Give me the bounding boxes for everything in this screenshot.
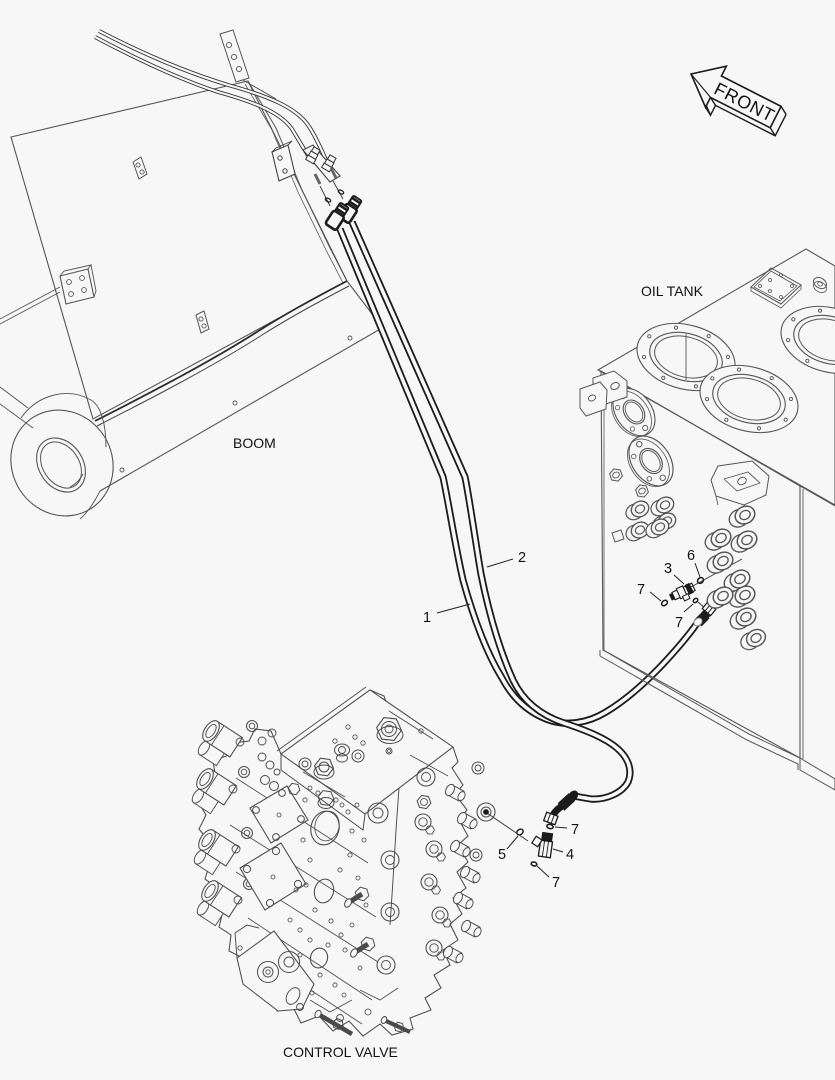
svg-text:6: 6 [687,548,695,564]
svg-text:CONTROL VALVE: CONTROL VALVE [283,1044,398,1060]
svg-text:1: 1 [423,610,431,626]
svg-text:3: 3 [664,561,672,577]
svg-text:7: 7 [675,615,683,631]
svg-text:7: 7 [571,822,579,838]
svg-text:4: 4 [566,847,574,863]
svg-text:5: 5 [498,847,506,863]
svg-text:7: 7 [637,582,645,598]
svg-text:2: 2 [518,550,526,566]
svg-text:7: 7 [552,875,560,891]
svg-text:BOOM: BOOM [233,435,276,451]
svg-text:OIL TANK: OIL TANK [641,283,704,299]
